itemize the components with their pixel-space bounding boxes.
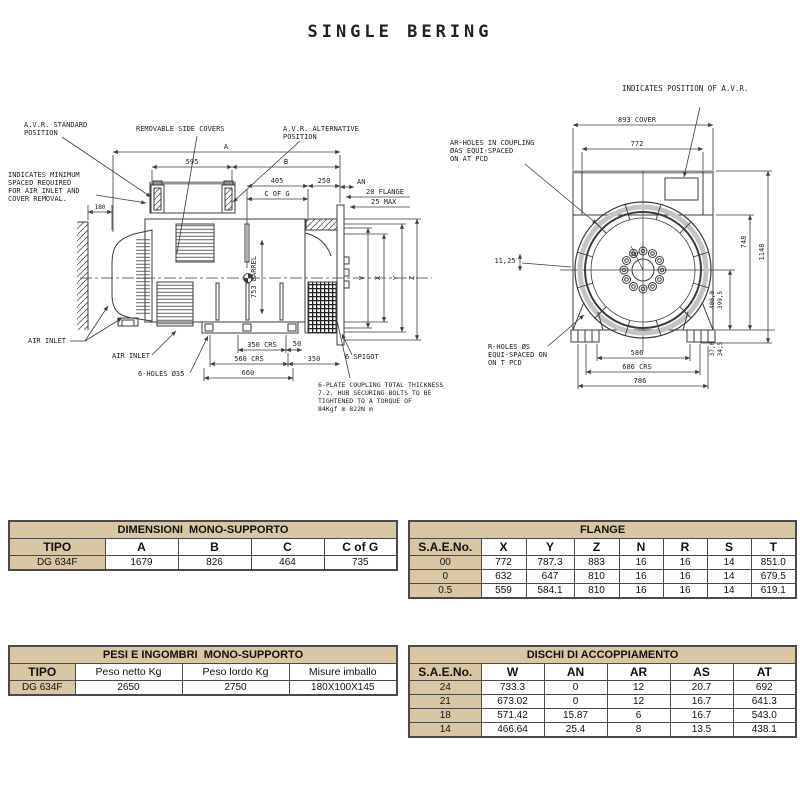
avr-alternative-label: POSITION (283, 133, 317, 141)
table-cell: 13.5 (670, 723, 733, 738)
dim-400-0: 400,0 (709, 291, 716, 309)
row-key: DG 634F (9, 681, 75, 696)
table-cell: 2750 (182, 681, 289, 696)
column-header: TIPO (9, 664, 75, 681)
table-row: 0 632 647 810 16 16 14 679.5 (409, 570, 796, 584)
table-cell: 559 (481, 584, 526, 599)
top-cover (150, 181, 235, 213)
removable-covers-label: REMOVABLE SIDE COVERS (136, 125, 225, 133)
avr-standard-label: POSITION (24, 129, 58, 137)
row-key: 0 (409, 570, 481, 584)
table-cell: 851.0 (751, 556, 796, 570)
table-cell: 16 (619, 556, 663, 570)
column-header: W (481, 664, 544, 681)
table-cell: 12 (607, 695, 670, 709)
table-cell: 571.42 (481, 709, 544, 723)
column-header: AN (544, 664, 607, 681)
dim-a: A (224, 143, 229, 151)
column-header: A (105, 539, 178, 556)
table-cell: 0 (544, 695, 607, 709)
table-cell: 466.64 (481, 723, 544, 738)
dim-34-5: 34,5 (717, 341, 724, 356)
column-header: AS (670, 664, 733, 681)
dim-25-max: 25 MAX (371, 198, 397, 206)
pesi-table: PESI E INGOMBRI MONO-SUPPORTO TIPO Peso … (8, 645, 398, 696)
table-cell: 438.1 (733, 723, 796, 738)
dim-560-crs: 560 CRS (234, 355, 264, 363)
air-inlet-label: AIR INLET (112, 352, 151, 360)
bell-and-flange (305, 205, 349, 345)
table-cell: 16 (663, 584, 707, 599)
table-cell: 14 (707, 556, 751, 570)
side-view-drawing: A.V.R. STANDARD POSITION REMOVABLE SIDE … (8, 121, 443, 413)
dim-586: 586 (631, 349, 644, 357)
table-cell: 16.7 (670, 695, 733, 709)
column-header: Misure imballo (289, 664, 397, 681)
table-cell: 180X100X145 (289, 681, 397, 696)
table-title: DISCHI DI ACCOPPIAMENTO (409, 646, 796, 664)
table-cell: 464 (251, 556, 324, 571)
avr-position-label: INDICATES POSITION OF A.V.R. (622, 84, 748, 93)
table-row: 21 673.02 0 12 16.7 641.3 (409, 695, 796, 709)
table-cell: 647 (526, 570, 574, 584)
dim-772: 772 (631, 140, 644, 148)
dim-v: V (358, 275, 366, 280)
table-cell: 16.7 (670, 709, 733, 723)
dim-250: 250 (318, 177, 331, 185)
r-holes-label: ON T PCD (488, 359, 522, 367)
dim-686-crs: 686 CRS (622, 363, 652, 371)
table-header-row: S.A.E.No. W AN AR AS AT (409, 664, 796, 681)
min-space-note: COVER REMOVAL. (8, 195, 67, 203)
flange-table: FLANGE S.A.E.No. X Y Z N R S T 00 772 78… (408, 520, 797, 599)
table-header-row: TIPO A B C C of G (9, 539, 397, 556)
dim-c-of-g: C OF G (264, 190, 289, 198)
min-space-note: INDICATES MINIMUM (8, 171, 80, 179)
table-cell: 810 (574, 584, 619, 599)
dim-z: Z (408, 276, 416, 280)
table-cell: 16 (619, 584, 663, 599)
technical-drawing: A.V.R. STANDARD POSITION REMOVABLE SIDE … (0, 0, 800, 470)
table-cell: 883 (574, 556, 619, 570)
column-header: T (751, 539, 796, 556)
column-header: TIPO (9, 539, 105, 556)
datasheet-page: SINGLE BERING (0, 0, 800, 800)
table-title: PESI E INGOMBRI MONO-SUPPORTO (9, 646, 397, 664)
generator-body (145, 219, 305, 326)
table-cell: 25.4 (544, 723, 607, 738)
table-cell: 772 (481, 556, 526, 570)
ar-holes-label: AR-HOLES IN COUPLING (450, 139, 534, 147)
front-view-drawing: INDICATES POSITION OF A.V.R. 893 COVER 7… (450, 84, 775, 389)
six-holes-label: 6-HOLES Ø35 (138, 370, 184, 378)
table-cell: 584.1 (526, 584, 574, 599)
table-title-row: DIMENSIONI MONO-SUPPORTO (9, 521, 397, 539)
dim-y: Y (392, 275, 400, 280)
dim-180: 180 (95, 204, 106, 211)
table-cell: 735 (324, 556, 397, 571)
coupling-note: 6-PLATE COUPLING TOTAL THICKNESS (318, 381, 443, 389)
dim-1148: 1148 (758, 244, 766, 261)
column-header: S.A.E.No. (409, 664, 481, 681)
dim-748: 748 (740, 236, 748, 249)
column-header: Peso lordo Kg (182, 664, 289, 681)
column-header: B (178, 539, 251, 556)
dim-b: B (284, 158, 288, 166)
table-cell: 641.3 (733, 695, 796, 709)
table-cell: 2650 (75, 681, 182, 696)
dim-399-5: 399,5 (717, 291, 724, 309)
table-header-row: TIPO Peso netto Kg Peso lordo Kg Misure … (9, 664, 397, 681)
row-key: 24 (409, 681, 481, 695)
column-header: Z (574, 539, 619, 556)
row-key: 00 (409, 556, 481, 570)
air-inlet-label: AIR INLET (28, 337, 67, 345)
table-cell: 16 (619, 570, 663, 584)
table-title: DIMENSIONI MONO-SUPPORTO (9, 521, 397, 539)
dimensioni-table: DIMENSIONI MONO-SUPPORTO TIPO A B C C of… (8, 520, 398, 571)
dim-660: 660 (242, 369, 255, 377)
r-holes-label: R-HOLES ØS (488, 343, 530, 351)
coupling-note: 7.2. HUB SECURING BOLTS TO BE (318, 389, 432, 397)
dim-350: 350 (308, 355, 321, 363)
front-dimension-lines (520, 125, 775, 389)
row-key: 0.5 (409, 584, 481, 599)
table-row: 0.5 559 584.1 810 16 16 14 619.1 (409, 584, 796, 599)
column-header: R (663, 539, 707, 556)
dim-20-flange: 20 FLANGE (366, 188, 404, 196)
ar-holes-label: ØAS EQUI-SPACED (450, 147, 513, 155)
table-cell: 543.0 (733, 709, 796, 723)
row-key: 14 (409, 723, 481, 738)
table-row: DG 634F 2650 2750 180X100X145 (9, 681, 397, 696)
row-key: 18 (409, 709, 481, 723)
table-cell: 692 (733, 681, 796, 695)
table-title-row: DISCHI DI ACCOPPIAMENTO (409, 646, 796, 664)
table-cell: 14 (707, 570, 751, 584)
table-cell: 673.02 (481, 695, 544, 709)
row-key: DG 634F (9, 556, 105, 571)
table-cell: 12 (607, 681, 670, 695)
table-row: DG 634F 1679 826 464 735 (9, 556, 397, 571)
dischi-table: DISCHI DI ACCOPPIAMENTO S.A.E.No. W AN A… (408, 645, 797, 738)
min-space-note: SPACED REQUIRED (8, 179, 71, 187)
front-view-labels: INDICATES POSITION OF A.V.R. 893 COVER 7… (450, 84, 766, 385)
table-header-row: S.A.E.No. X Y Z N R S T (409, 539, 796, 556)
column-header: N (619, 539, 663, 556)
dim-an: AN (357, 178, 365, 186)
table-row: 18 571.42 15.87 6 16.7 543.0 (409, 709, 796, 723)
min-space-note: FOR AIR INLET AND (8, 187, 80, 195)
coupling-note: 84Kgf m 822N m (318, 405, 373, 413)
table-cell: 619.1 (751, 584, 796, 599)
table-row: 00 772 787.3 883 16 16 14 851.0 (409, 556, 796, 570)
table-cell: 16 (663, 556, 707, 570)
table-row: 14 466.64 25.4 8 13.5 438.1 (409, 723, 796, 738)
table-cell: 733.3 (481, 681, 544, 695)
column-header: Y (526, 539, 574, 556)
table-title-row: FLANGE (409, 521, 796, 539)
table-cell: 826 (178, 556, 251, 571)
table-cell: 8 (607, 723, 670, 738)
table-cell: 632 (481, 570, 526, 584)
side-view-labels: A.V.R. STANDARD POSITION REMOVABLE SIDE … (8, 121, 443, 413)
base-skid (202, 322, 298, 333)
dim-893-cover: 893 COVER (618, 116, 657, 124)
table-cell: 679.5 (751, 570, 796, 584)
table-cell: 20.7 (670, 681, 733, 695)
r-holes-label: EQUI-SPACED ON (488, 351, 547, 359)
coupling-note: TIGHTENED TO A TORQUE OF (318, 397, 412, 405)
avr-alternative-label: A.V.R. ALTERNATIVE (283, 125, 359, 133)
ar-holes-label: ON AT PCD (450, 155, 488, 163)
front-leader-lines (525, 107, 700, 346)
dim-786: 786 (634, 377, 647, 385)
table-cell: 1679 (105, 556, 178, 571)
table-cell: 810 (574, 570, 619, 584)
dim-30-deg: 30° (630, 252, 640, 258)
avr-standard-label: A.V.R. STANDARD (24, 121, 87, 129)
wall-section (77, 222, 88, 330)
dim-350-crs: 350 CRS (247, 341, 277, 349)
table-cell: 0 (544, 681, 607, 695)
table-cell: 15.87 (544, 709, 607, 723)
table-cell: 6 (607, 709, 670, 723)
column-header: C of G (324, 539, 397, 556)
table-cell: 16 (663, 570, 707, 584)
column-header: Peso netto Kg (75, 664, 182, 681)
avr-box (665, 178, 698, 200)
dim-753-barrel: 753 BARREL (250, 256, 258, 298)
dim-405: 405 (271, 177, 284, 185)
spigot-label: 6 SPIGOT (345, 353, 380, 361)
dim-595: 595 (186, 158, 199, 166)
table-cell: 787.3 (526, 556, 574, 570)
column-header: S (707, 539, 751, 556)
column-header: X (481, 539, 526, 556)
column-header: S.A.E.No. (409, 539, 481, 556)
table-cell: 14 (707, 584, 751, 599)
column-header: AR (607, 664, 670, 681)
table-title: FLANGE (409, 521, 796, 539)
dim-50: 50 (293, 340, 301, 348)
dim-11-25: 11,25 (494, 257, 515, 265)
row-key: 21 (409, 695, 481, 709)
table-row: 24 733.3 0 12 20.7 692 (409, 681, 796, 695)
dim-37-0: 37,0 (709, 341, 716, 356)
dim-x: X (374, 275, 382, 280)
column-header: AT (733, 664, 796, 681)
column-header: C (251, 539, 324, 556)
table-title-row: PESI E INGOMBRI MONO-SUPPORTO (9, 646, 397, 664)
